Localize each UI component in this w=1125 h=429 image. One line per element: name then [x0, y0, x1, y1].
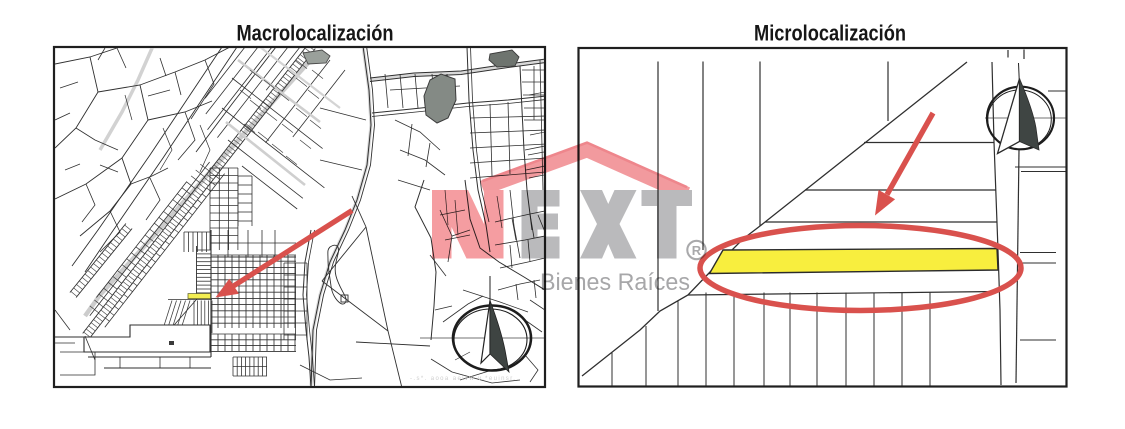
svg-text:-.s*. aooa aeivw v.*euinsr..: -.s*. aooa aeivw v.*euinsr.. [410, 376, 518, 382]
svg-text:Macrolocalización: Macrolocalización [237, 21, 394, 46]
svg-text:R: R [692, 243, 702, 258]
svg-text:Microlocalización: Microlocalización [754, 21, 906, 46]
svg-text:Bienes Raíces: Bienes Raíces [540, 269, 690, 296]
